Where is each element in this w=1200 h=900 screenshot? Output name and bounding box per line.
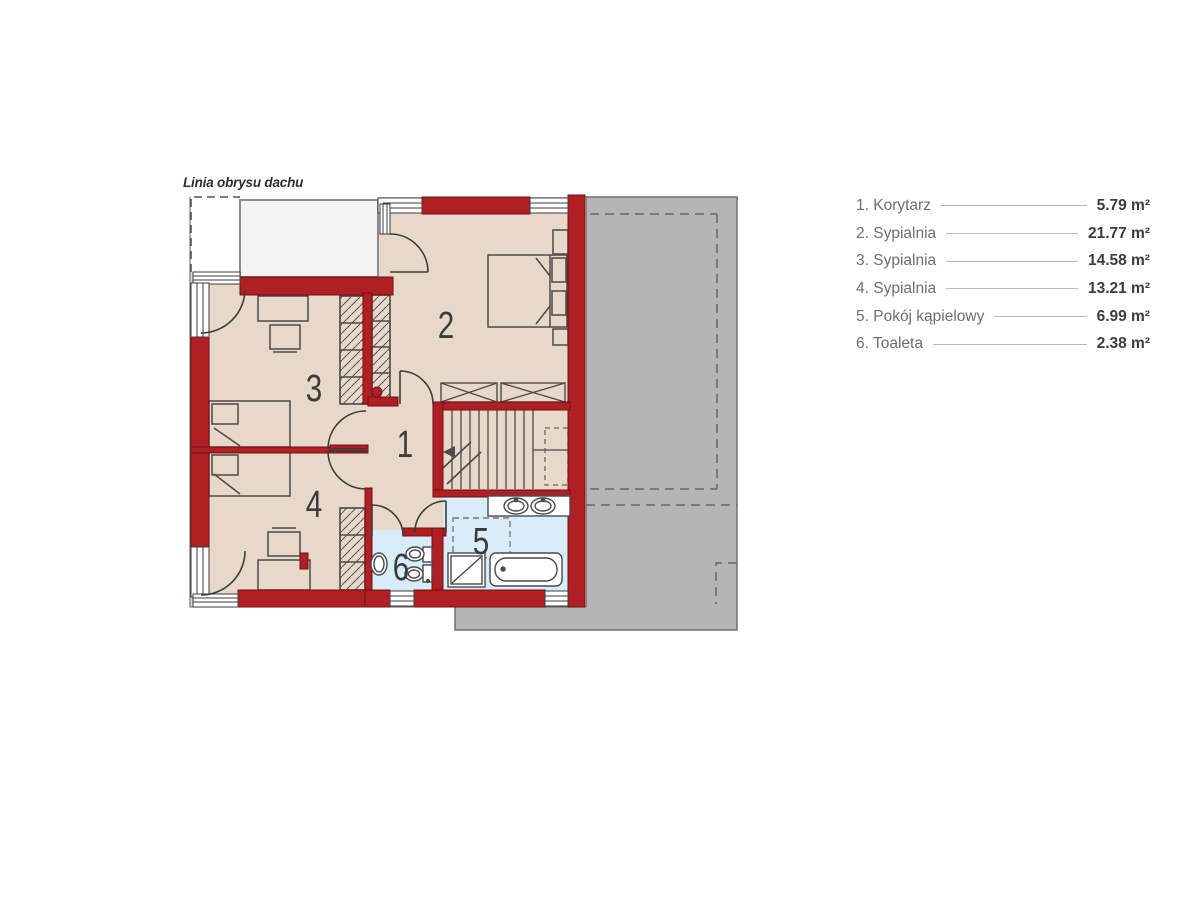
legend-row: 6. Toaleta 2.38 m² <box>856 330 1150 358</box>
window-top-room2 <box>530 198 568 213</box>
legend-room-label: 4. Sypialnia <box>856 280 936 298</box>
legend-room-area: 6.99 m² <box>1097 308 1150 326</box>
wardrobe-room2 <box>372 295 390 398</box>
legend-room-area: 13.21 m² <box>1088 280 1150 298</box>
bathroom-counter-sinks <box>488 496 570 516</box>
legend-rule <box>946 233 1078 234</box>
wall-under-balcony <box>240 277 393 295</box>
bathtub <box>490 553 562 586</box>
nightstand <box>553 329 568 345</box>
room-number-1: 1 <box>397 424 413 466</box>
legend-rule <box>946 288 1078 289</box>
toilet-sink <box>371 553 387 575</box>
bidet <box>406 547 432 562</box>
room-number-4: 4 <box>306 484 322 526</box>
room-number-3: 3 <box>306 368 322 410</box>
legend-room-label: 5. Pokój kąpielowy <box>856 308 984 326</box>
legend-row: 2. Sypialnia 21.77 m² <box>856 220 1150 248</box>
legend-room-area: 21.77 m² <box>1088 225 1150 243</box>
wall-top <box>422 197 530 214</box>
legend-rule <box>946 261 1078 262</box>
floor-plan-page: 1 2 3 4 5 6 Linia obrysu dachu 1. Koryta… <box>0 0 1200 900</box>
door-frame-room3 <box>191 283 209 337</box>
legend-rule <box>994 316 1086 317</box>
window-bottom-bathroom <box>545 591 568 606</box>
legend-row: 5. Pokój kąpielowy 6.99 m² <box>856 303 1150 331</box>
window-bottom-left <box>193 594 238 607</box>
legend-room-area: 14.58 m² <box>1088 252 1150 270</box>
window-left-top <box>193 272 240 284</box>
legend-row: 4. Sypialnia 13.21 m² <box>856 275 1150 303</box>
legend-room-label: 1. Korytarz <box>856 197 931 215</box>
room-legend: 1. Korytarz 5.79 m² 2. Sypialnia 21.77 m… <box>856 192 1150 358</box>
floor-plan-drawing: 1 2 3 4 5 6 <box>0 0 1200 900</box>
legend-room-area: 5.79 m² <box>1097 197 1150 215</box>
legend-row: 3. Sypialnia 14.58 m² <box>856 247 1150 275</box>
balcony <box>240 200 378 277</box>
room-number-5: 5 <box>473 521 489 563</box>
legend-room-label: 6. Toaleta <box>856 335 923 353</box>
legend-rule <box>933 344 1087 345</box>
room-number-2: 2 <box>438 305 454 347</box>
legend-rule <box>941 205 1087 206</box>
legend-row: 1. Korytarz 5.79 m² <box>856 192 1150 220</box>
bed-room3 <box>209 401 290 447</box>
bed-room4 <box>209 452 290 496</box>
closet-room2 <box>441 383 565 402</box>
legend-room-label: 3. Sypialnia <box>856 252 936 270</box>
nightstand <box>553 230 568 254</box>
legend-room-label: 2. Sypialnia <box>856 225 936 243</box>
legend-room-area: 2.38 m² <box>1097 335 1150 353</box>
structural-column <box>372 387 382 397</box>
door-frame-room4 <box>191 547 209 597</box>
room-number-6: 6 <box>393 547 409 589</box>
structural-column <box>300 553 308 569</box>
window-bottom-toilet <box>390 591 414 606</box>
wardrobe-room4 <box>340 508 365 590</box>
wall-left <box>191 337 209 547</box>
wall-bottom <box>238 590 365 607</box>
roof-outline-label: Linia obrysu dachu <box>183 175 303 190</box>
wall-right <box>568 195 585 607</box>
